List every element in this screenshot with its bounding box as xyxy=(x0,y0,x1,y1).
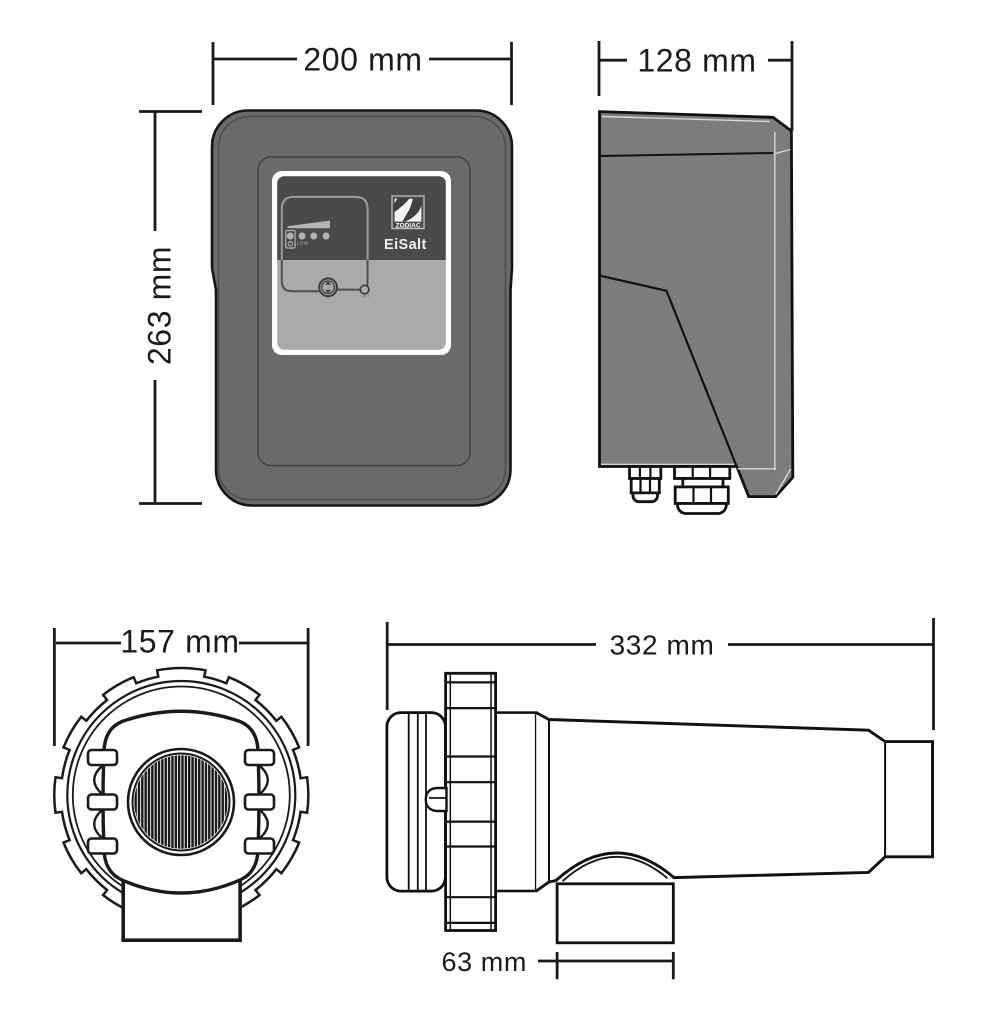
svg-text:200 mm: 200 mm xyxy=(303,42,422,78)
svg-text:SALT: SALT xyxy=(360,295,370,299)
svg-text:ZODIAC: ZODIAC xyxy=(396,222,421,229)
svg-text:263 mm: 263 mm xyxy=(142,246,178,365)
svg-text:LOW: LOW xyxy=(297,240,309,245)
svg-text:128 mm: 128 mm xyxy=(637,43,756,79)
svg-text:EiSalt: EiSalt xyxy=(384,237,427,253)
svg-text:332 mm: 332 mm xyxy=(610,630,715,661)
svg-text:157 mm: 157 mm xyxy=(120,624,239,660)
svg-text:63 mm: 63 mm xyxy=(441,947,527,977)
